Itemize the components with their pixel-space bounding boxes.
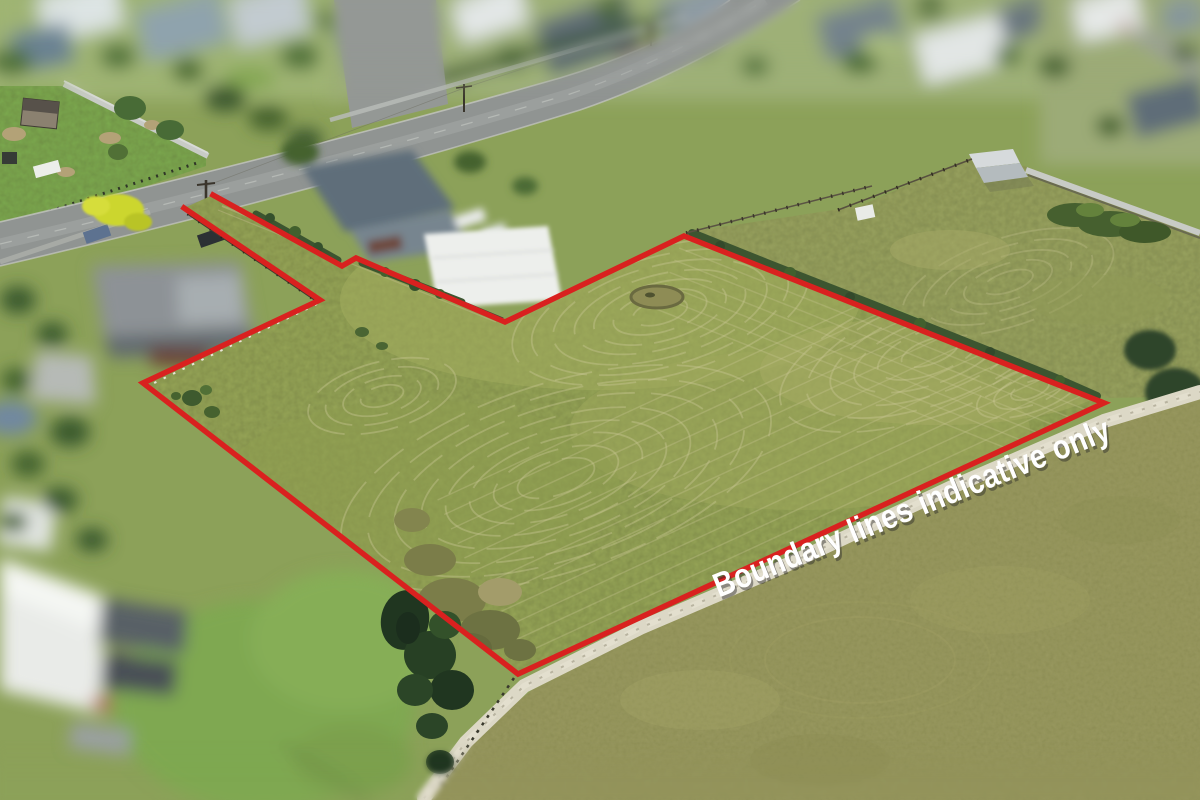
suburb-top-right xyxy=(1039,0,1200,165)
parked-car-dark xyxy=(2,152,17,164)
tree xyxy=(156,120,184,140)
aerial-photo-canvas: Boundary lines indicative only Boundary … xyxy=(0,0,1200,800)
tree xyxy=(114,96,146,120)
tree xyxy=(108,144,128,160)
dirt-mound xyxy=(631,286,683,308)
garden-shed xyxy=(21,98,60,129)
aerial-photo: Boundary lines indicative only Boundary … xyxy=(0,0,1200,800)
